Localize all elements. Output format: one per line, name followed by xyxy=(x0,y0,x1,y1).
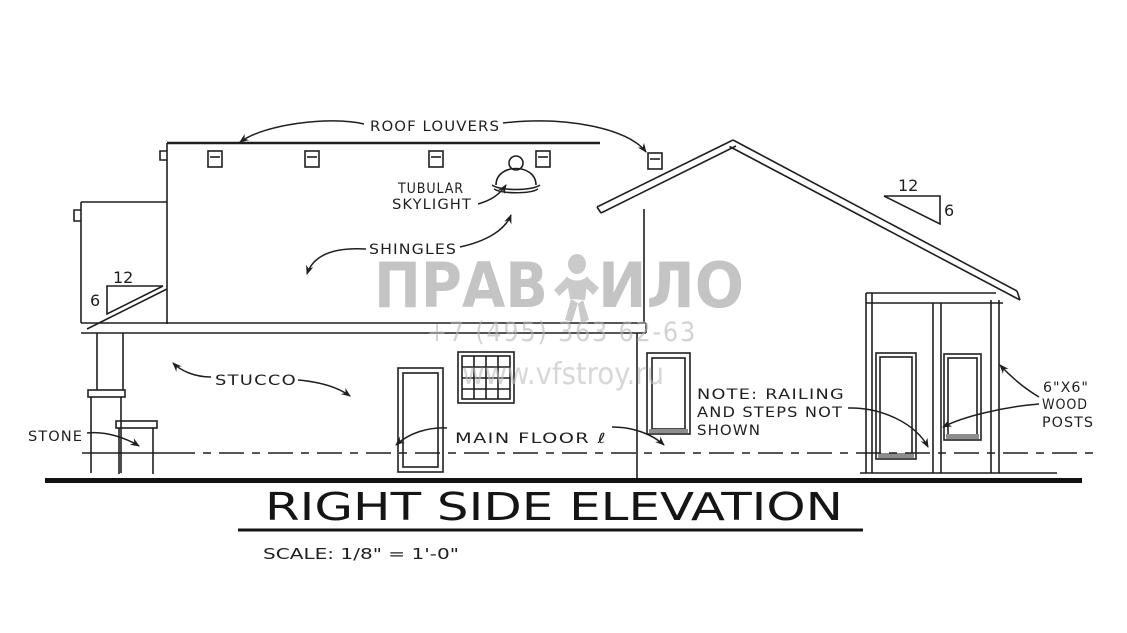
parapet-cap xyxy=(160,151,167,160)
main-wall xyxy=(398,333,690,478)
slope-right-run-label: 12 xyxy=(898,176,918,195)
main-floor-label: MAIN FLOOR ℓ xyxy=(455,431,607,447)
porch-post-middle xyxy=(933,303,941,473)
roof-louver xyxy=(536,151,550,167)
roof-louver xyxy=(429,151,443,167)
porch xyxy=(860,293,1057,473)
watermark-phone: +7 (495) 363 62-63 xyxy=(427,317,697,348)
shingles-label: SHINGLES xyxy=(369,242,457,258)
porch-opening-right xyxy=(944,354,981,440)
low-wall-cap xyxy=(74,210,81,221)
watermark-mascot-icon xyxy=(554,254,599,323)
elevation-canvas: ПРАВ ИЛО +7 (495) 363 62-63 www.vfstroy.… xyxy=(0,0,1127,633)
note-label-line3: SHOWN xyxy=(697,423,761,439)
watermark-brand-right: ИЛО xyxy=(598,249,744,322)
stucco-label: STUCCO xyxy=(215,373,297,389)
roof-louver xyxy=(305,151,319,167)
leader-shingles-left xyxy=(307,249,366,274)
wood-posts-label-line1: 6"X6" xyxy=(1043,380,1089,396)
porch-post-left xyxy=(866,293,872,473)
tall-door-window xyxy=(398,368,443,472)
roof-louvers-group xyxy=(208,151,662,169)
leader-stone xyxy=(87,433,139,446)
leader-roof-louvers-left xyxy=(240,121,364,142)
tubular-skylight-dome xyxy=(492,156,540,193)
slope-left-rise-label: 6 xyxy=(90,291,100,310)
title-block: RIGHT SIDE ELEVATION SCALE: 1/8" = 1'-0" xyxy=(238,485,863,563)
note-label-line1: NOTE: RAILING xyxy=(697,387,845,403)
watermark-website: www.vfstroy.ru xyxy=(462,357,664,392)
roof-louvers-label: ROOF LOUVERS xyxy=(370,119,500,135)
drawing-title: RIGHT SIDE ELEVATION xyxy=(265,485,843,529)
porch-opening-left xyxy=(876,353,916,459)
slope-indicator-left xyxy=(107,286,163,314)
elevation-drawing-sheet: ПРАВ ИЛО +7 (495) 363 62-63 www.vfstroy.… xyxy=(0,0,1127,633)
leader-shingles-right xyxy=(460,215,511,247)
wood-posts-label-line3: POSTS xyxy=(1042,415,1094,431)
note-label-line2: AND STEPS NOT xyxy=(697,405,843,421)
stone-label: STONE xyxy=(28,429,83,445)
slope-right-rise-label: 6 xyxy=(944,201,954,220)
roof-louver xyxy=(648,153,662,169)
leader-wood-posts-upper xyxy=(1000,365,1039,397)
wood-posts-label-line2: WOOD xyxy=(1042,397,1088,413)
porch-post-right xyxy=(991,300,999,473)
slope-left-run-label: 12 xyxy=(113,268,133,287)
leader-stucco-left xyxy=(173,363,211,377)
leader-roof-louvers-right xyxy=(503,121,646,152)
scale-label: SCALE: 1/8" = 1'-0" xyxy=(263,545,459,563)
slope-indicator-right xyxy=(884,196,940,224)
tubular-skylight-label-line2: SKYLIGHT xyxy=(392,197,472,213)
watermark-brand-left: ПРАВ xyxy=(374,249,548,322)
tubular-skylight-label-line1: TUBULAR xyxy=(397,181,464,197)
roof-louver xyxy=(208,151,222,167)
leader-stucco-right xyxy=(298,380,350,396)
watermark: ПРАВ ИЛО +7 (495) 363 62-63 www.vfstroy.… xyxy=(374,249,744,392)
